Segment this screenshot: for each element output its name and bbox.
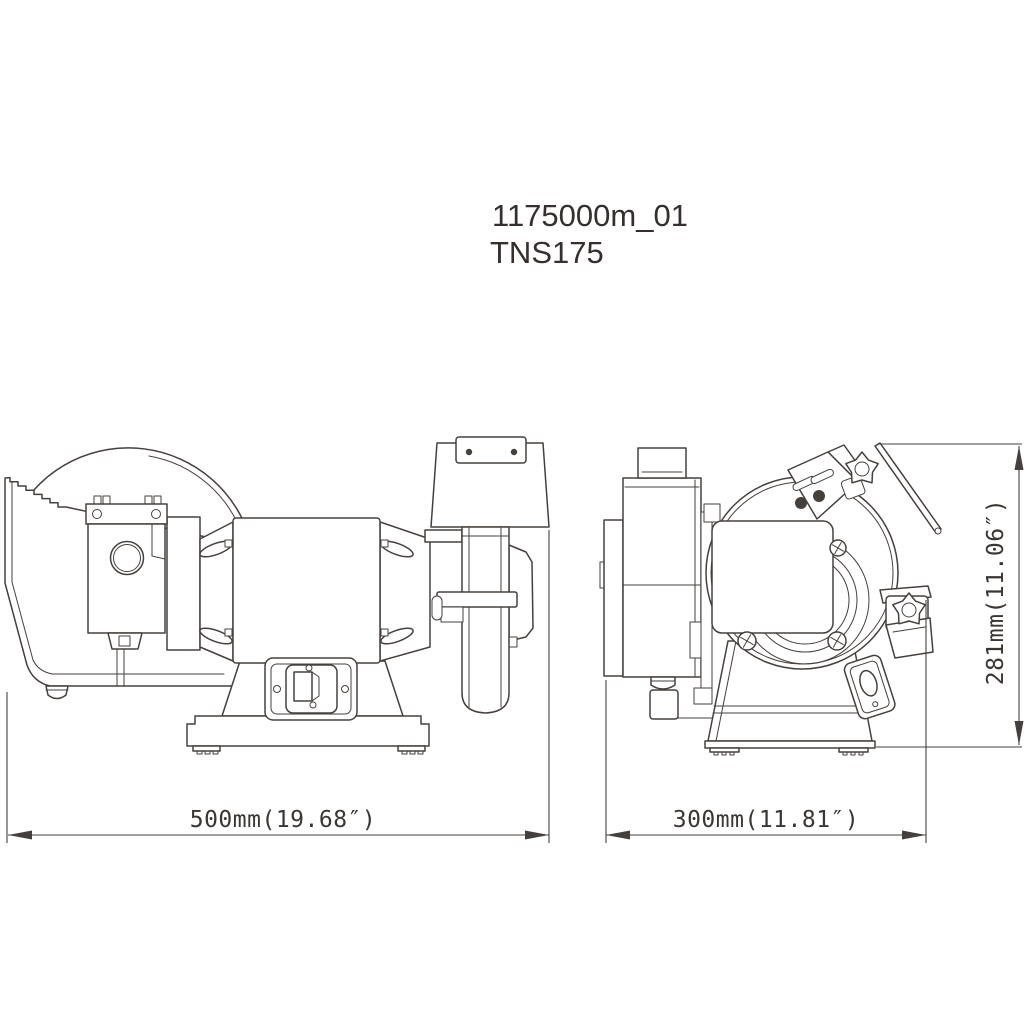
panel-screw [342,686,349,693]
drain-plug [651,677,675,689]
width-dimension-label: 500mm(19.68″) [190,807,377,833]
foot [710,748,739,752]
tool-rest-side [880,586,933,658]
trough-foot [46,686,68,699]
dry-wheel [432,527,533,713]
motor-body [712,521,833,633]
plate-hole [111,542,144,575]
side-view: 300mm(11.81″) 281mm(11.06″) [600,443,1024,843]
rocker-switch [294,672,312,701]
panel-screw [274,686,281,693]
model-name: TNS175 [490,235,604,270]
spark-guard [431,437,549,527]
height-dimension-label: 281mm(11.06″) [983,499,1009,686]
title-block: 1175000m_01 TNS175 [490,198,688,270]
plate-screw [93,510,102,519]
plate-screw [152,510,161,519]
wheel-arm [425,530,462,542]
bracket-screw [813,490,825,502]
front-view: 500mm(19.68″) [5,437,549,843]
drawing-canvas: 500mm(19.68″) [0,0,1024,1024]
clamp-knob-side [902,603,916,617]
guard-screw [511,449,517,455]
foot [398,746,425,751]
water-trough-side [600,448,712,719]
foot [839,748,868,752]
technical-drawing: 500mm(19.68″) [0,0,1024,1024]
switch-panel [265,658,357,720]
end-bell [167,517,200,650]
foot [193,746,220,751]
eye-shield-arm [875,443,941,534]
drawing-number: 1175000m_01 [492,198,688,233]
guard-screw [466,449,472,455]
depth-dimension-label: 300mm(11.81″) [673,807,860,833]
bracket-screw [795,497,807,509]
tool-rest [437,592,517,607]
